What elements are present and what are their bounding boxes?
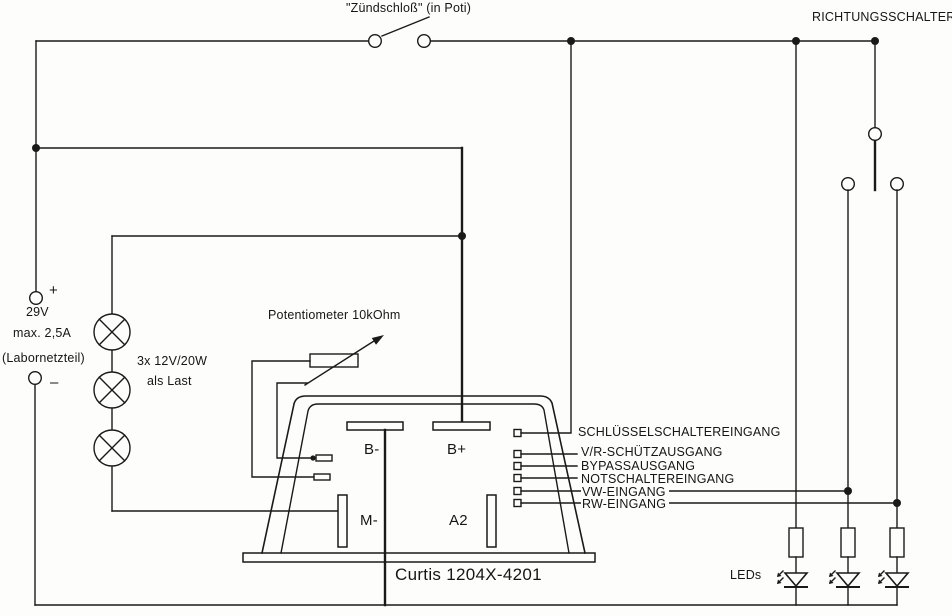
led-icon-3 xyxy=(878,557,908,605)
b-minus-terminal xyxy=(347,422,403,430)
pin-label-vr-contactor-output: V/R-SCHÜTZAUSGANG xyxy=(581,446,723,459)
supply-minus-sign: – xyxy=(50,375,59,391)
load-label-line2: als Last xyxy=(147,375,192,388)
pin-square-rw xyxy=(514,500,521,507)
ignition-switch xyxy=(369,17,431,47)
supply-name-label: (Labornetzteil) xyxy=(2,352,85,365)
schematic-wiring xyxy=(0,0,952,616)
potentiometer-label: Potentiometer 10kOhm xyxy=(268,309,401,322)
a2-terminal xyxy=(487,495,496,547)
pot-wiper-arrow-icon xyxy=(372,335,384,345)
lamp-icon-3 xyxy=(94,430,130,466)
supply-current-label: max. 2,5A xyxy=(13,327,71,340)
controller-baseplate xyxy=(243,553,595,562)
controller-name-label: Curtis 1204X-4201 xyxy=(395,566,542,584)
potentiometer-symbol xyxy=(252,335,384,480)
supply-voltage-label: 29V xyxy=(26,306,49,319)
direction-switch xyxy=(796,41,903,528)
pot-pin-lower xyxy=(314,474,330,480)
ignition-switch-label: "Zündschloß" (in Poti) xyxy=(346,2,471,15)
direction-switch-label: RICHTUNGSSCHALTER xyxy=(812,11,952,24)
terminal-label-b-minus: B- xyxy=(364,442,379,458)
pot-pin-upper xyxy=(316,455,332,461)
pin-label-rw-input: RW-EINGANG xyxy=(581,498,669,511)
pin-square-vw xyxy=(514,488,521,495)
leds-label: LEDs xyxy=(730,569,761,582)
minus-terminal-icon xyxy=(29,372,42,385)
pin-square-bypass xyxy=(514,463,521,470)
led-branches xyxy=(777,528,908,605)
resistor-2 xyxy=(841,528,855,557)
plus-terminal-icon xyxy=(30,292,43,305)
m-minus-terminal xyxy=(338,495,347,547)
schematic-canvas: "Zündschloß" (in Poti) RICHTUNGSSCHALTER… xyxy=(0,0,952,616)
resistor-3 xyxy=(890,528,904,557)
supply-positive-wire xyxy=(30,41,43,304)
supply-plus-sign: + xyxy=(49,283,58,299)
lamp-icon-1 xyxy=(94,314,130,350)
pin-square-ksi xyxy=(514,430,521,437)
load-label-line1: 3x 12V/20W xyxy=(137,355,207,368)
terminal-label-m-minus: M- xyxy=(360,513,378,529)
led-icon-1 xyxy=(777,557,807,605)
lamp-icon-2 xyxy=(94,372,130,408)
led-icon-2 xyxy=(829,557,859,605)
key-switch-input-wire xyxy=(521,41,571,433)
terminal-label-a2: A2 xyxy=(449,513,468,529)
pin-label-key-switch-input: SCHLÜSSELSCHALTEREINGANG xyxy=(578,426,781,439)
resistor-1 xyxy=(789,528,803,557)
terminal-label-b-plus: B+ xyxy=(447,442,466,458)
controller-housing xyxy=(243,396,595,562)
pin-square-not xyxy=(514,475,521,482)
b-plus-terminal xyxy=(433,422,490,430)
pin-square-vr xyxy=(514,451,521,458)
